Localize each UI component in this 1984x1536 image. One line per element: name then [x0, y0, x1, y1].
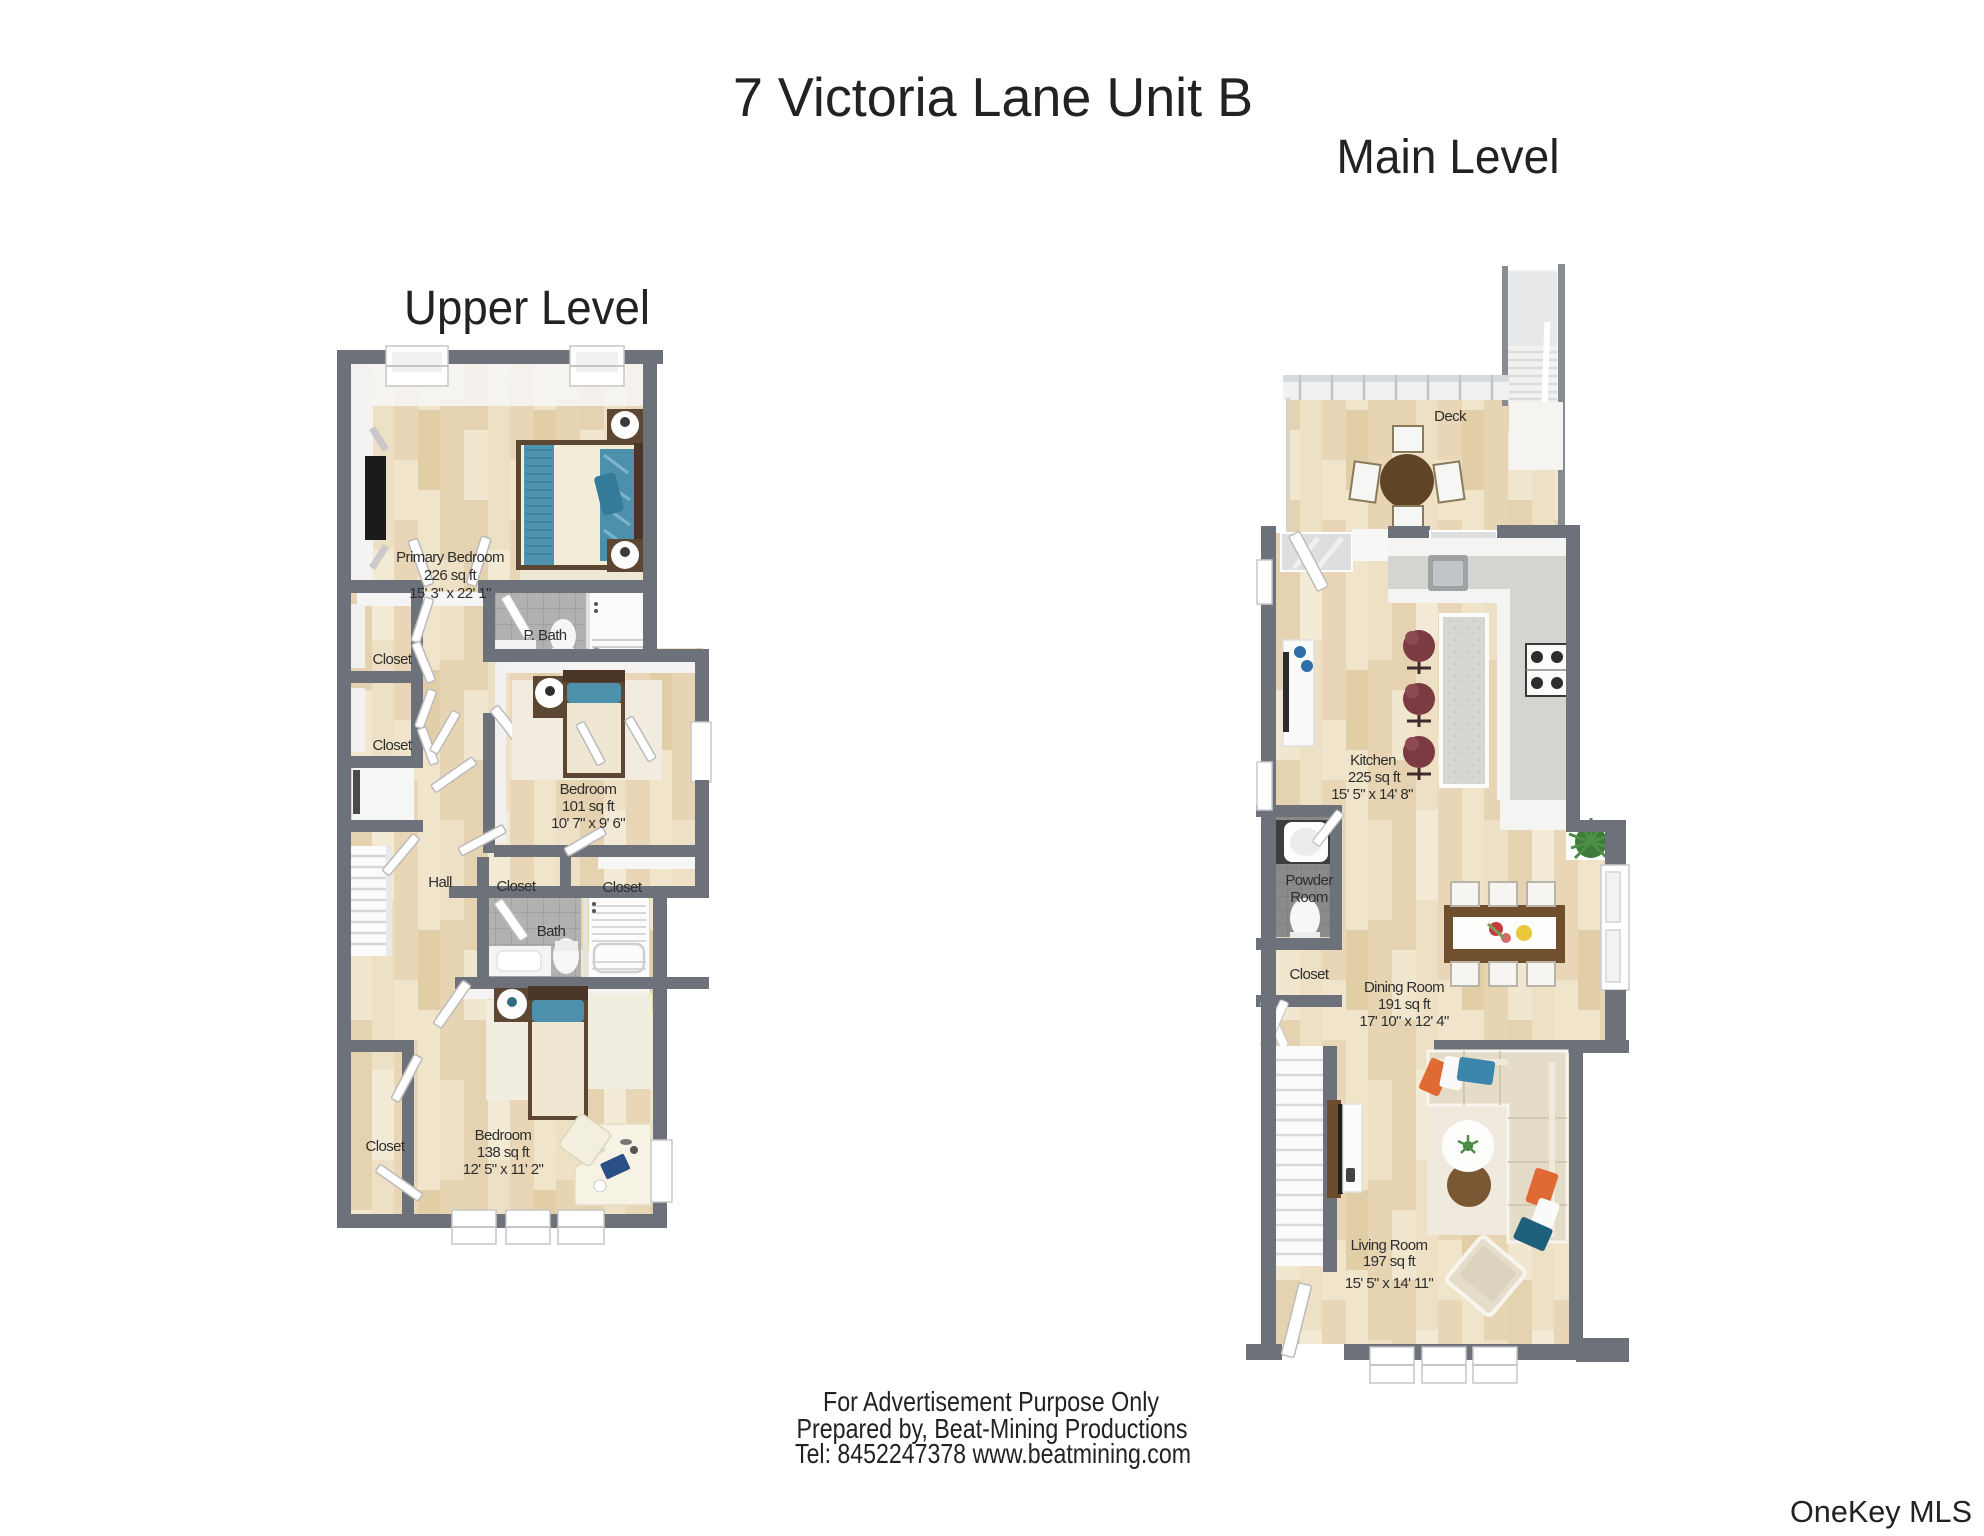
svg-text:Upper Level: Upper Level	[404, 282, 650, 335]
svg-text:P. Bath: P. Bath	[523, 627, 566, 644]
svg-text:15' 5" x 14' 8": 15' 5" x 14' 8"	[1331, 786, 1413, 803]
svg-text:OneKey MLS: OneKey MLS	[1790, 1494, 1972, 1529]
svg-text:Closet: Closet	[366, 1138, 406, 1155]
svg-text:Hall: Hall	[428, 874, 452, 891]
svg-text:7 Victoria Lane Unit B: 7 Victoria Lane Unit B	[733, 67, 1253, 128]
svg-text:Tel: 8452247378 www.beatmining: Tel: 8452247378 www.beatmining.com	[795, 1438, 1191, 1469]
svg-text:Primary Bedroom: Primary Bedroom	[396, 549, 504, 566]
svg-text:Closet: Closet	[497, 878, 537, 895]
svg-text:Room: Room	[1290, 889, 1328, 906]
svg-text:15' 5" x 14' 11": 15' 5" x 14' 11"	[1345, 1275, 1434, 1292]
svg-text:12' 5" x 11' 2": 12' 5" x 11' 2"	[463, 1161, 544, 1178]
svg-text:Living Room: Living Room	[1351, 1237, 1428, 1254]
svg-text:225 sq ft: 225 sq ft	[1348, 769, 1402, 786]
svg-text:Bedroom: Bedroom	[560, 781, 617, 798]
svg-text:17' 10" x 12' 4": 17' 10" x 12' 4"	[1359, 1013, 1449, 1030]
svg-text:Closet: Closet	[373, 737, 413, 754]
svg-text:Powder: Powder	[1285, 872, 1333, 889]
svg-text:Closet: Closet	[373, 651, 413, 668]
svg-text:138 sq ft: 138 sq ft	[477, 1144, 531, 1161]
svg-text:10' 7" x 9' 6": 10' 7" x 9' 6"	[551, 815, 625, 832]
svg-text:Dining Room: Dining Room	[1364, 979, 1444, 996]
svg-text:Bedroom: Bedroom	[475, 1127, 532, 1144]
svg-text:Kitchen: Kitchen	[1350, 752, 1396, 769]
svg-text:197 sq ft: 197 sq ft	[1363, 1253, 1417, 1270]
svg-text:Closet: Closet	[1290, 966, 1330, 983]
svg-text:15' 3" x 22' 1": 15' 3" x 22' 1"	[409, 585, 491, 602]
svg-text:226 sq ft: 226 sq ft	[424, 567, 478, 584]
svg-text:Bath: Bath	[537, 923, 566, 940]
svg-text:191 sq ft: 191 sq ft	[1378, 996, 1432, 1013]
svg-text:Deck: Deck	[1434, 408, 1467, 425]
svg-text:Closet: Closet	[603, 879, 643, 896]
svg-text:Main Level: Main Level	[1337, 130, 1560, 184]
svg-text:101 sq ft: 101 sq ft	[562, 798, 616, 815]
